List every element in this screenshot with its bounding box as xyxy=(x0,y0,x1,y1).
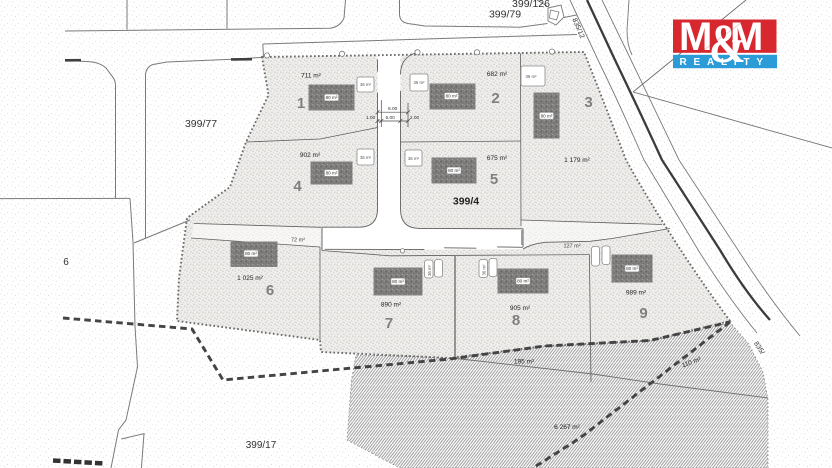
svg-text:36 m²: 36 m² xyxy=(408,156,420,161)
svg-text:682 m²: 682 m² xyxy=(487,71,508,78)
svg-text:399/79: 399/79 xyxy=(489,9,521,21)
svg-text:72 m²: 72 m² xyxy=(291,238,305,244)
svg-text:6: 6 xyxy=(266,282,274,299)
svg-text:6: 6 xyxy=(63,257,69,268)
svg-text:902 m²: 902 m² xyxy=(300,152,321,159)
svg-text:4: 4 xyxy=(293,178,302,195)
svg-text:80 m²: 80 m² xyxy=(448,168,460,173)
svg-text:890 m²: 890 m² xyxy=(381,302,402,309)
svg-text:1.00: 1.00 xyxy=(366,115,376,121)
svg-text:36 m²: 36 m² xyxy=(360,155,372,160)
svg-text:36 m²: 36 m² xyxy=(526,74,538,79)
svg-text:711 m²: 711 m² xyxy=(301,73,322,80)
svg-text:2.00: 2.00 xyxy=(410,115,420,121)
svg-text:9: 9 xyxy=(639,305,647,322)
svg-text:7: 7 xyxy=(385,315,393,332)
svg-text:80 m²: 80 m² xyxy=(626,266,638,271)
svg-text:36 m²: 36 m² xyxy=(414,80,426,85)
svg-text:36 m²: 36 m² xyxy=(360,82,372,87)
svg-text:399/126: 399/126 xyxy=(512,0,550,10)
svg-text:1 179 m²: 1 179 m² xyxy=(564,157,590,164)
svg-text:675 m²: 675 m² xyxy=(487,155,508,162)
svg-text:8: 8 xyxy=(512,312,520,329)
svg-text:399/77: 399/77 xyxy=(185,118,217,130)
svg-text:36 m²: 36 m² xyxy=(427,264,432,276)
svg-text:80 m²: 80 m² xyxy=(326,171,338,176)
svg-text:3: 3 xyxy=(584,94,592,111)
svg-text:80 m²: 80 m² xyxy=(392,279,404,284)
svg-text:80 m²: 80 m² xyxy=(245,251,257,256)
svg-text:80 m²: 80 m² xyxy=(326,95,338,100)
svg-text:399/4: 399/4 xyxy=(453,196,479,208)
svg-text:5.00: 5.00 xyxy=(386,115,396,121)
svg-text:2: 2 xyxy=(491,90,499,107)
svg-text:80 m²: 80 m² xyxy=(541,114,553,119)
svg-text:&: & xyxy=(709,13,746,74)
svg-text:1: 1 xyxy=(297,95,305,112)
svg-text:80 m²: 80 m² xyxy=(517,279,529,284)
svg-text:80 m²: 80 m² xyxy=(446,94,458,99)
svg-text:36 m²: 36 m² xyxy=(482,264,487,276)
svg-text:989 m²: 989 m² xyxy=(626,290,647,297)
svg-text:1 025 m²: 1 025 m² xyxy=(237,275,263,282)
svg-text:195 m²: 195 m² xyxy=(514,359,535,366)
svg-text:8.00: 8.00 xyxy=(388,106,398,112)
svg-text:905 m²: 905 m² xyxy=(510,305,531,312)
svg-text:127 m²: 127 m² xyxy=(563,244,580,250)
svg-text:399/17: 399/17 xyxy=(246,440,277,451)
svg-text:M: M xyxy=(679,15,712,59)
svg-text:6 267 m²: 6 267 m² xyxy=(554,424,580,431)
svg-text:5: 5 xyxy=(490,171,498,188)
